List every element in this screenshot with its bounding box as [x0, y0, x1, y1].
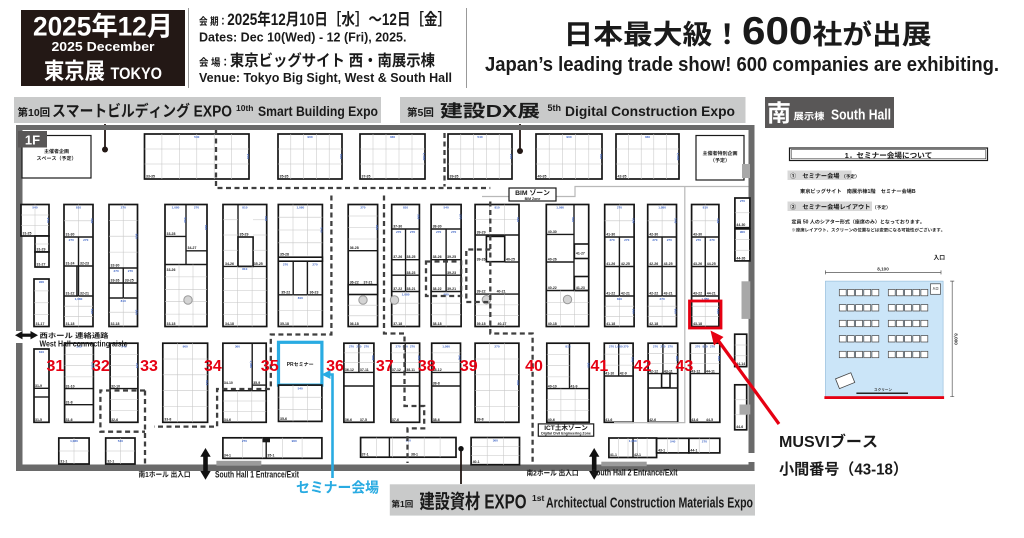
svg-text:270: 270: [356, 344, 361, 348]
svg-text:※座席レイアウト、スクリーンの位置などは変更になる可能性がご: ※座席レイアウト、スクリーンの位置などは変更になる可能性がございます。: [792, 228, 946, 233]
svg-text:31-5: 31-5: [35, 418, 42, 422]
svg-text:540: 540: [194, 135, 199, 139]
svg-text:41-22: 41-22: [606, 291, 615, 295]
svg-text:43-22: 43-22: [693, 291, 702, 295]
svg-text:PRセミナー: PRセミナー: [287, 362, 314, 368]
svg-text:900: 900: [740, 230, 745, 234]
svg-text:39-26: 39-26: [477, 258, 486, 262]
svg-text:42-21: 42-21: [621, 291, 630, 295]
svg-text:41-26: 41-26: [606, 262, 615, 266]
svg-text:31-22: 31-22: [66, 291, 75, 295]
svg-text:270: 270: [609, 344, 614, 348]
svg-text:540: 540: [90, 309, 94, 314]
svg-text:BIM Zone: BIM Zone: [525, 197, 541, 201]
svg-text:41-27: 41-27: [576, 252, 585, 256]
svg-text:34-18: 34-18: [225, 322, 234, 326]
svg-text:39-18: 39-18: [477, 322, 486, 326]
svg-text:34-27: 34-27: [188, 246, 197, 250]
svg-text:1,080: 1,080: [172, 206, 180, 210]
svg-text:43-25: 43-25: [664, 262, 673, 266]
svg-text:38-25: 38-25: [407, 255, 416, 259]
svg-text:南2ホール 出入口: 南2ホール 出入口: [527, 469, 579, 478]
svg-text:41-6: 41-6: [605, 418, 612, 422]
svg-text:33-8: 33-8: [164, 418, 171, 422]
svg-text:41-23: 41-23: [576, 286, 585, 290]
svg-text:Smart Building Expo: Smart Building Expo: [258, 103, 378, 119]
svg-text:31-24: 31-24: [66, 261, 75, 265]
svg-text:900: 900: [631, 218, 635, 223]
svg-text:540: 540: [670, 440, 675, 444]
svg-text:ICT土木ゾーン: ICT土木ゾーン: [544, 424, 588, 432]
svg-text:540: 540: [444, 206, 449, 210]
svg-text:270: 270: [696, 238, 701, 242]
svg-text:38-22: 38-22: [433, 287, 442, 291]
svg-text:33-18: 33-18: [167, 322, 176, 326]
svg-text:36-12: 36-12: [345, 368, 354, 372]
svg-text:810: 810: [205, 380, 209, 385]
svg-text:34-1: 34-1: [224, 454, 231, 458]
svg-text:42-30: 42-30: [649, 232, 658, 236]
svg-text:Digital Civil Engineering Zone: Digital Civil Engineering Zone: [541, 432, 591, 436]
svg-text:1st: 1st: [532, 493, 544, 503]
svg-text:43-11: 43-11: [664, 369, 673, 373]
svg-text:37-30: 37-30: [393, 225, 402, 229]
svg-text:35-22: 35-22: [281, 291, 290, 295]
svg-text:540: 540: [118, 439, 123, 443]
svg-text:42-25: 42-25: [621, 262, 630, 266]
svg-text:270: 270: [667, 238, 672, 242]
svg-text:270: 270: [128, 269, 133, 273]
svg-text:37-22: 37-22: [393, 287, 402, 291]
svg-text:1,080: 1,080: [422, 153, 426, 161]
svg-text:270: 270: [114, 269, 119, 273]
svg-text:900: 900: [39, 280, 44, 284]
svg-text:43-30: 43-30: [693, 232, 702, 236]
svg-text:39-23: 39-23: [447, 271, 456, 275]
svg-text:36-18: 36-18: [350, 322, 359, 326]
svg-text:40-35: 40-35: [538, 174, 547, 178]
svg-text:41-9: 41-9: [571, 384, 578, 388]
svg-text:1,080: 1,080: [615, 344, 623, 348]
svg-text:900: 900: [204, 225, 208, 230]
svg-text:建設資材 EXPO: 建設資材 EXPO: [420, 492, 527, 514]
svg-text:入口: 入口: [934, 255, 946, 262]
svg-text:32-18: 32-18: [111, 322, 120, 326]
svg-text:360: 360: [716, 218, 720, 223]
svg-text:44-1: 44-1: [690, 448, 697, 452]
svg-text:41-30: 41-30: [606, 232, 615, 236]
svg-text:Architectual Construction Mate: Architectual Construction Materials Expo: [546, 495, 753, 512]
svg-text:40-10: 40-10: [548, 384, 557, 388]
svg-text:40-25: 40-25: [506, 258, 515, 262]
svg-text:南1ホール 出入口: 南1ホール 出入口: [139, 470, 191, 479]
svg-text:35-9: 35-9: [253, 381, 260, 385]
svg-text:540: 540: [298, 386, 303, 390]
svg-text:31-29: 31-29: [37, 247, 46, 251]
svg-text:1F: 1F: [25, 133, 40, 148]
svg-text:MUSVIブース: MUSVIブース: [779, 433, 878, 451]
svg-text:31-18: 31-18: [66, 322, 75, 326]
svg-text:360: 360: [264, 216, 268, 221]
svg-text:31-8: 31-8: [66, 400, 73, 404]
svg-text:37-21: 37-21: [364, 281, 373, 285]
svg-text:900: 900: [674, 309, 678, 314]
svg-text:33-35: 33-35: [146, 174, 155, 178]
svg-text:360: 360: [717, 356, 721, 361]
svg-text:10th: 10th: [236, 103, 253, 113]
svg-text:Digital Construction Expo: Digital Construction Expo: [565, 103, 735, 119]
svg-text:31-17: 31-17: [36, 322, 45, 326]
svg-text:37-18: 37-18: [393, 322, 402, 326]
svg-text:900: 900: [135, 234, 139, 239]
svg-text:810: 810: [617, 297, 622, 301]
svg-text:小間番号（43-18）: 小間番号（43-18）: [779, 461, 908, 479]
svg-text:270: 270: [660, 297, 665, 301]
svg-text:32-1: 32-1: [107, 459, 114, 463]
svg-text:1,080: 1,080: [676, 153, 680, 161]
svg-text:42-9: 42-9: [620, 372, 627, 376]
svg-text:810: 810: [703, 206, 708, 210]
svg-text:270: 270: [617, 206, 622, 210]
svg-text:360: 360: [631, 309, 635, 314]
svg-text:定員 50 人のシアター形式（座席のみ）となっております。: 定員 50 人のシアター形式（座席のみ）となっております。: [792, 219, 925, 226]
svg-text:38-26: 38-26: [433, 255, 442, 259]
svg-text:31-30: 31-30: [66, 232, 75, 236]
svg-text:35-35: 35-35: [280, 174, 289, 178]
svg-text:36-23: 36-23: [310, 291, 319, 295]
svg-text:40-18: 40-18: [548, 322, 557, 326]
svg-text:38-8: 38-8: [433, 382, 440, 386]
svg-text:41-18: 41-18: [606, 322, 615, 326]
svg-text:270: 270: [410, 230, 415, 234]
svg-text:44-5: 44-5: [706, 418, 713, 422]
svg-text:スペース（予定）: スペース（予定）: [36, 155, 76, 162]
svg-text:900: 900: [516, 380, 520, 385]
svg-text:360: 360: [390, 135, 395, 139]
svg-text:360: 360: [235, 344, 240, 348]
svg-text:32-23: 32-23: [80, 261, 89, 265]
svg-text:38-6: 38-6: [433, 418, 440, 422]
svg-text:1,080: 1,080: [70, 439, 78, 443]
svg-text:810: 810: [298, 296, 303, 300]
svg-text:35-28: 35-28: [280, 252, 289, 256]
svg-text:（予定）: （予定）: [710, 157, 730, 164]
svg-text:Dates: Dec 10(Wed) - 12 (Fri),: Dates: Dec 10(Wed) - 12 (Fri), 2025.: [199, 31, 406, 45]
svg-text:540: 540: [716, 309, 720, 314]
svg-text:40-17: 40-17: [498, 322, 507, 326]
svg-text:33: 33: [140, 358, 158, 375]
svg-text:540: 540: [183, 217, 187, 222]
svg-text:35-6: 35-6: [280, 417, 287, 421]
svg-text:270: 270: [83, 238, 88, 242]
svg-text:1,080: 1,080: [556, 206, 564, 210]
svg-text:360: 360: [135, 310, 139, 315]
svg-text:31-6: 31-6: [66, 418, 73, 422]
svg-text:38-23: 38-23: [407, 271, 416, 275]
svg-text:38-11: 38-11: [406, 368, 415, 372]
svg-text:270: 270: [668, 344, 673, 348]
svg-text:38-21: 38-21: [407, 287, 416, 291]
svg-text:43-6: 43-6: [691, 418, 698, 422]
svg-text:32-21: 32-21: [80, 291, 89, 295]
svg-text:34-10: 34-10: [224, 381, 233, 385]
svg-text:31-10: 31-10: [66, 384, 75, 388]
svg-text:44-26: 44-26: [736, 256, 745, 260]
svg-text:37: 37: [376, 358, 394, 375]
svg-text:会 場：東京ビッグサイト 西・南展示棟: 会 場：東京ビッグサイト 西・南展示棟: [199, 52, 435, 70]
svg-text:2025 December: 2025 December: [52, 40, 155, 54]
svg-text:810: 810: [339, 154, 343, 159]
svg-text:第10回: 第10回: [18, 106, 51, 119]
svg-text:360: 360: [493, 439, 498, 443]
svg-text:270: 270: [695, 344, 700, 348]
svg-text:42-35: 42-35: [618, 174, 627, 178]
svg-text:32-6: 32-6: [111, 418, 118, 422]
svg-text:810: 810: [76, 206, 81, 210]
svg-text:33-26: 33-26: [167, 268, 176, 272]
svg-text:44-11: 44-11: [706, 369, 715, 373]
svg-text:44-21: 44-21: [707, 291, 716, 295]
svg-text:33-28: 33-28: [167, 232, 176, 236]
svg-text:270: 270: [242, 439, 247, 443]
svg-text:40-22: 40-22: [548, 286, 557, 290]
svg-text:42-22: 42-22: [649, 291, 658, 295]
svg-text:360: 360: [516, 217, 520, 222]
svg-text:270: 270: [135, 363, 139, 368]
svg-text:32-10: 32-10: [111, 384, 120, 388]
svg-text:1,080: 1,080: [658, 206, 666, 210]
svg-text:BIM ゾーン: BIM ゾーン: [515, 189, 550, 197]
svg-text:スマートビルディング EXPO: スマートビルディング EXPO: [52, 103, 232, 121]
svg-text:38-1: 38-1: [411, 453, 418, 457]
svg-text:40-30: 40-30: [548, 230, 557, 234]
svg-text:Venue: Tokyo Big Sight, West &: Venue: Tokyo Big Sight, West & South Hal…: [199, 71, 452, 85]
svg-text:37-6: 37-6: [392, 418, 399, 422]
svg-text:270: 270: [609, 238, 614, 242]
svg-text:West Hall connecting aisle: West Hall connecting aisle: [40, 339, 128, 349]
svg-text:第1回: 第1回: [392, 499, 414, 509]
svg-text:270: 270: [624, 238, 629, 242]
svg-text:270: 270: [69, 238, 74, 242]
svg-text:270: 270: [396, 230, 401, 234]
svg-text:40-1: 40-1: [473, 460, 480, 464]
svg-text:810: 810: [403, 206, 408, 210]
svg-text:270: 270: [660, 344, 665, 348]
svg-text:42-1: 42-1: [634, 453, 641, 457]
svg-text:540: 540: [571, 217, 575, 222]
svg-text:33-25: 33-25: [125, 278, 134, 282]
svg-text:セミナー会場: セミナー会場: [296, 480, 379, 497]
svg-text:270: 270: [709, 238, 714, 242]
svg-text:37-35: 37-35: [362, 174, 371, 178]
svg-text:360: 360: [90, 218, 94, 223]
svg-text:44-25: 44-25: [707, 262, 716, 266]
svg-text:36-22: 36-22: [350, 281, 359, 285]
svg-text:入口: 入口: [932, 287, 938, 291]
svg-text:540: 540: [320, 227, 324, 232]
svg-text:South Hall: South Hall: [831, 107, 891, 124]
svg-text:1,080: 1,080: [402, 293, 410, 297]
svg-text:270: 270: [121, 206, 126, 210]
svg-text:41-1: 41-1: [610, 453, 617, 457]
svg-text:810: 810: [702, 344, 707, 348]
svg-text:35-1: 35-1: [267, 454, 274, 458]
svg-text:39: 39: [460, 358, 478, 375]
svg-text:東京ビッグサイト 南展示棟1階 セミナー会場B: 東京ビッグサイト 南展示棟1階 セミナー会場B: [800, 188, 916, 195]
svg-text:44-6: 44-6: [736, 425, 743, 429]
svg-text:39-29: 39-29: [477, 231, 486, 235]
svg-text:展示棟: 展示棟: [794, 111, 826, 123]
svg-text:900: 900: [183, 344, 188, 348]
svg-text:36-6: 36-6: [345, 418, 352, 422]
svg-text:900: 900: [307, 135, 312, 139]
svg-text:810: 810: [242, 267, 247, 271]
svg-text:43-26: 43-26: [693, 262, 702, 266]
svg-text:810: 810: [494, 206, 499, 210]
svg-text:34: 34: [204, 358, 222, 375]
svg-text:810: 810: [565, 344, 570, 348]
svg-text:5th: 5th: [548, 103, 562, 113]
svg-text:900: 900: [375, 225, 379, 230]
svg-text:270: 270: [451, 230, 456, 234]
svg-text:37-26: 37-26: [393, 255, 402, 259]
svg-text:8,000: 8,000: [954, 333, 959, 345]
svg-text:270: 270: [246, 154, 250, 159]
svg-text:33-26: 33-26: [111, 278, 120, 282]
svg-text:31-1: 31-1: [60, 459, 67, 463]
svg-text:1,080: 1,080: [442, 344, 450, 348]
svg-text:540: 540: [477, 135, 482, 139]
svg-text:270: 270: [436, 230, 441, 234]
svg-text:360: 360: [417, 214, 421, 219]
svg-text:43-18: 43-18: [693, 322, 702, 326]
svg-text:810: 810: [39, 350, 44, 354]
svg-text:② セミナー会場レイアウト （予定）: ② セミナー会場レイアウト （予定）: [790, 203, 891, 211]
svg-text:35-18: 35-18: [280, 322, 289, 326]
svg-text:270: 270: [410, 344, 415, 348]
svg-text:31-25: 31-25: [23, 231, 32, 235]
svg-text:270: 270: [458, 214, 462, 219]
svg-text:270: 270: [312, 263, 317, 267]
svg-text:31-27: 31-27: [37, 262, 46, 266]
svg-text:37-5: 37-5: [360, 418, 367, 422]
svg-text:39-21: 39-21: [447, 287, 456, 291]
svg-text:31: 31: [47, 358, 65, 375]
svg-text:40-6: 40-6: [548, 418, 555, 422]
svg-text:南: 南: [767, 101, 791, 128]
svg-text:40-21: 40-21: [497, 290, 506, 294]
svg-text:900: 900: [371, 355, 375, 360]
svg-text:37-11: 37-11: [360, 368, 369, 372]
svg-text:810: 810: [121, 299, 126, 303]
svg-text:8,100: 8,100: [877, 266, 889, 271]
svg-text:36-28: 36-28: [350, 246, 359, 250]
svg-text:40: 40: [525, 358, 543, 375]
svg-text:270: 270: [364, 344, 369, 348]
svg-text:270: 270: [494, 344, 499, 348]
svg-text:540: 540: [674, 218, 678, 223]
svg-text:270: 270: [360, 206, 365, 210]
svg-text:270: 270: [46, 218, 50, 223]
svg-text:270: 270: [652, 238, 657, 242]
svg-text:810: 810: [599, 154, 603, 159]
svg-text:900: 900: [566, 135, 571, 139]
svg-text:39-35: 39-35: [450, 174, 459, 178]
svg-text:270: 270: [194, 206, 199, 210]
svg-text:2025年12月: 2025年12月: [33, 12, 173, 42]
svg-text:主催者特別企画: 主催者特別企画: [702, 150, 737, 157]
svg-text:540: 540: [32, 206, 37, 210]
svg-text:会 期：2025年12月10日［水］～12日［金］: 会 期：2025年12月10日［水］～12日［金］: [199, 10, 451, 29]
svg-text:31-9: 31-9: [35, 384, 42, 388]
svg-text:43-21: 43-21: [664, 291, 673, 295]
svg-text:270: 270: [283, 263, 288, 267]
svg-text:1,080: 1,080: [296, 206, 304, 210]
svg-text:39-25: 39-25: [447, 255, 456, 259]
svg-text:34-26: 34-26: [225, 262, 234, 266]
svg-text:1,080: 1,080: [75, 297, 83, 301]
svg-text:270: 270: [349, 344, 354, 348]
svg-text:1．セミナー会場について: 1．セミナー会場について: [845, 151, 933, 160]
svg-text:270: 270: [623, 344, 628, 348]
svg-text:South Hall 2 Entrance/Exit: South Hall 2 Entrance/Exit: [592, 468, 678, 478]
svg-text:38: 38: [418, 358, 436, 375]
svg-text:42-18: 42-18: [649, 322, 658, 326]
svg-text:270: 270: [395, 344, 400, 348]
svg-text:1,080: 1,080: [249, 360, 253, 368]
svg-text:38-18: 38-18: [433, 322, 442, 326]
svg-text:スクリーン: スクリーン: [874, 388, 892, 392]
svg-text:43: 43: [676, 358, 694, 375]
svg-text:270: 270: [702, 440, 707, 444]
svg-text:43-1: 43-1: [658, 448, 665, 452]
svg-text:34-6: 34-6: [224, 418, 231, 422]
svg-text:第5回: 第5回: [407, 106, 434, 119]
svg-text:32-30: 32-30: [111, 263, 120, 267]
svg-text:1,080: 1,080: [629, 439, 637, 443]
svg-text:42-6: 42-6: [649, 418, 656, 422]
svg-text:Japan’s leading trade show! 60: Japan’s leading trade show! 600 companie…: [485, 53, 999, 76]
svg-text:360: 360: [645, 135, 650, 139]
svg-text:900: 900: [292, 439, 297, 443]
svg-text:39-22: 39-22: [477, 290, 486, 294]
svg-text:主催者企画: 主催者企画: [44, 148, 69, 155]
svg-text:35: 35: [261, 358, 279, 375]
svg-text:South Hall 1 Entrance/Exit: South Hall 1 Entrance/Exit: [215, 470, 299, 480]
svg-text:270: 270: [740, 199, 745, 203]
svg-text:39-8: 39-8: [477, 418, 484, 422]
svg-text:42-26: 42-26: [649, 262, 658, 266]
svg-text:44-30: 44-30: [736, 223, 745, 227]
svg-text:270: 270: [653, 344, 658, 348]
svg-text:35-25: 35-25: [254, 262, 263, 266]
svg-text:建設DX展: 建設DX展: [440, 101, 540, 121]
svg-text:810: 810: [242, 206, 247, 210]
svg-text:41: 41: [591, 358, 609, 375]
svg-text:42: 42: [634, 358, 652, 375]
svg-text:37-1: 37-1: [362, 453, 369, 457]
svg-text:270: 270: [509, 154, 513, 159]
svg-text:40-26: 40-26: [548, 258, 557, 262]
svg-text:① セミナー会場 （予定）: ① セミナー会場 （予定）: [790, 172, 860, 180]
svg-text:38-30: 38-30: [433, 225, 442, 229]
svg-text:35-29: 35-29: [240, 233, 249, 237]
svg-text:32: 32: [92, 358, 110, 375]
